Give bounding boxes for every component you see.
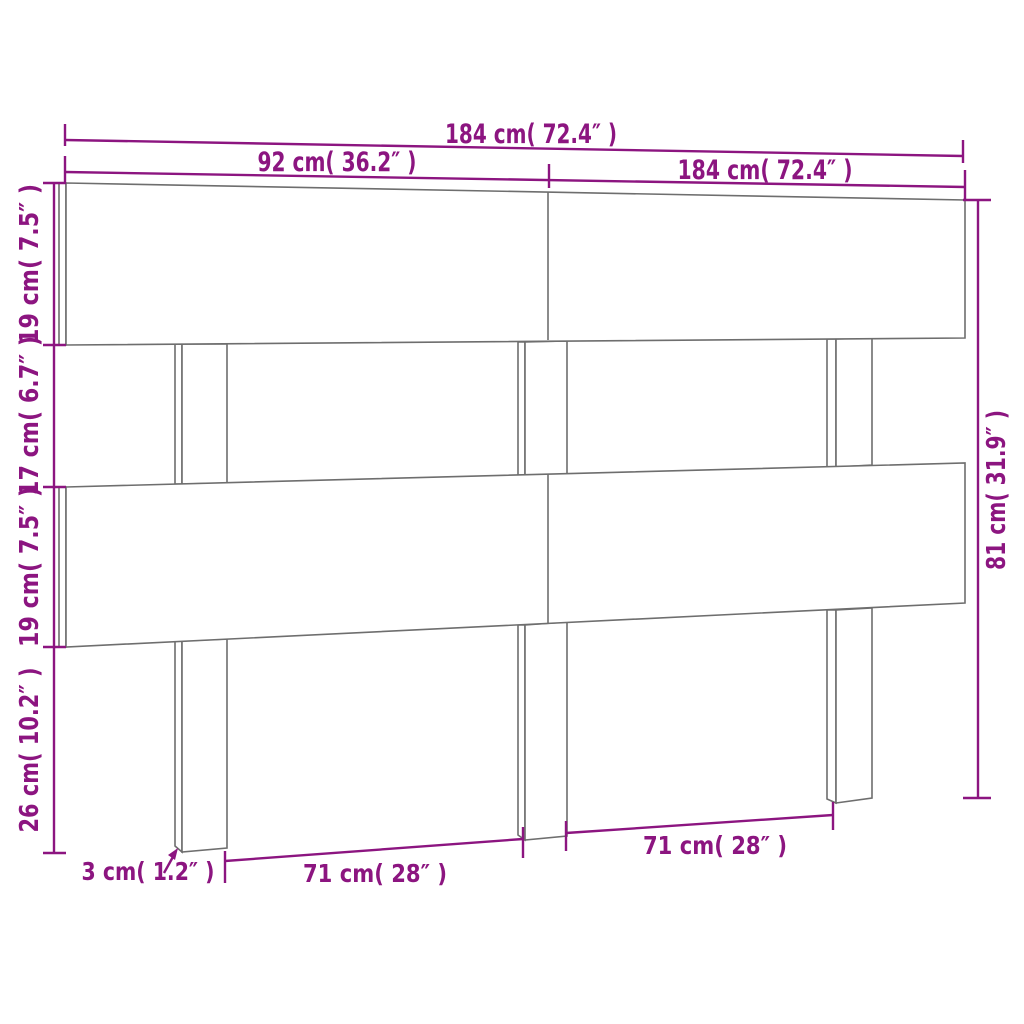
dim-middle-board-height-label: 19 cm( 7.5″ ) [15, 487, 45, 647]
post-left-side-face [175, 344, 182, 484]
diagram-canvas: 184 cm( 72.4″ ) 92 cm( 36.2″ ) 184 cm( 7… [0, 0, 1024, 1024]
dim-leg-span-right-label: 71 cm( 28″ ) [643, 831, 787, 860]
support-posts [175, 338, 872, 484]
top-board [59, 183, 965, 345]
dim-leg-section-height-label: 26 cm( 10.2″ ) [15, 668, 45, 833]
dim-top-board-height-label: 19 cm( 7.5″ ) [15, 184, 45, 344]
dim-total-width-label: 184 cm( 72.4″ ) [445, 119, 617, 150]
dim-gap-height-label: 17 cm( 6.7″ ) [15, 336, 45, 496]
top-board-side-face [59, 183, 66, 345]
leg-left-side-face [175, 641, 182, 852]
dim-board-thickness-label: 3 cm( 1.2″ ) [82, 857, 215, 886]
post-right-side-face [827, 339, 836, 467]
leg-middle-side-face [518, 625, 525, 840]
headboard-dimension-diagram: 184 cm( 72.4″ ) 92 cm( 36.2″ ) 184 cm( 7… [0, 0, 1024, 1024]
headboard-drawing [59, 183, 965, 852]
dim-total-height-label: 81 cm( 31.9″ ) [982, 410, 1012, 570]
middle-board-side-face [59, 487, 66, 647]
top-board-front-face [66, 183, 965, 345]
post-right-front-face [836, 338, 872, 467]
post-middle-front-face [525, 341, 567, 475]
post-left-front-face [182, 344, 227, 484]
post-middle-side-face [518, 342, 525, 475]
dim-leg-span-left-label: 71 cm( 28″ ) [303, 859, 447, 888]
legs [175, 608, 872, 852]
leg-right-front-face [836, 608, 872, 803]
leg-middle-front-face [525, 622, 567, 840]
dim-line-leg-span-left-rule [225, 839, 523, 861]
dim-total-width-right-label: 184 cm( 72.4″ ) [678, 155, 853, 186]
leg-right-side-face [827, 610, 836, 803]
dim-half-width-label: 92 cm( 36.2″ ) [258, 147, 417, 178]
leg-left-front-face [182, 639, 227, 852]
